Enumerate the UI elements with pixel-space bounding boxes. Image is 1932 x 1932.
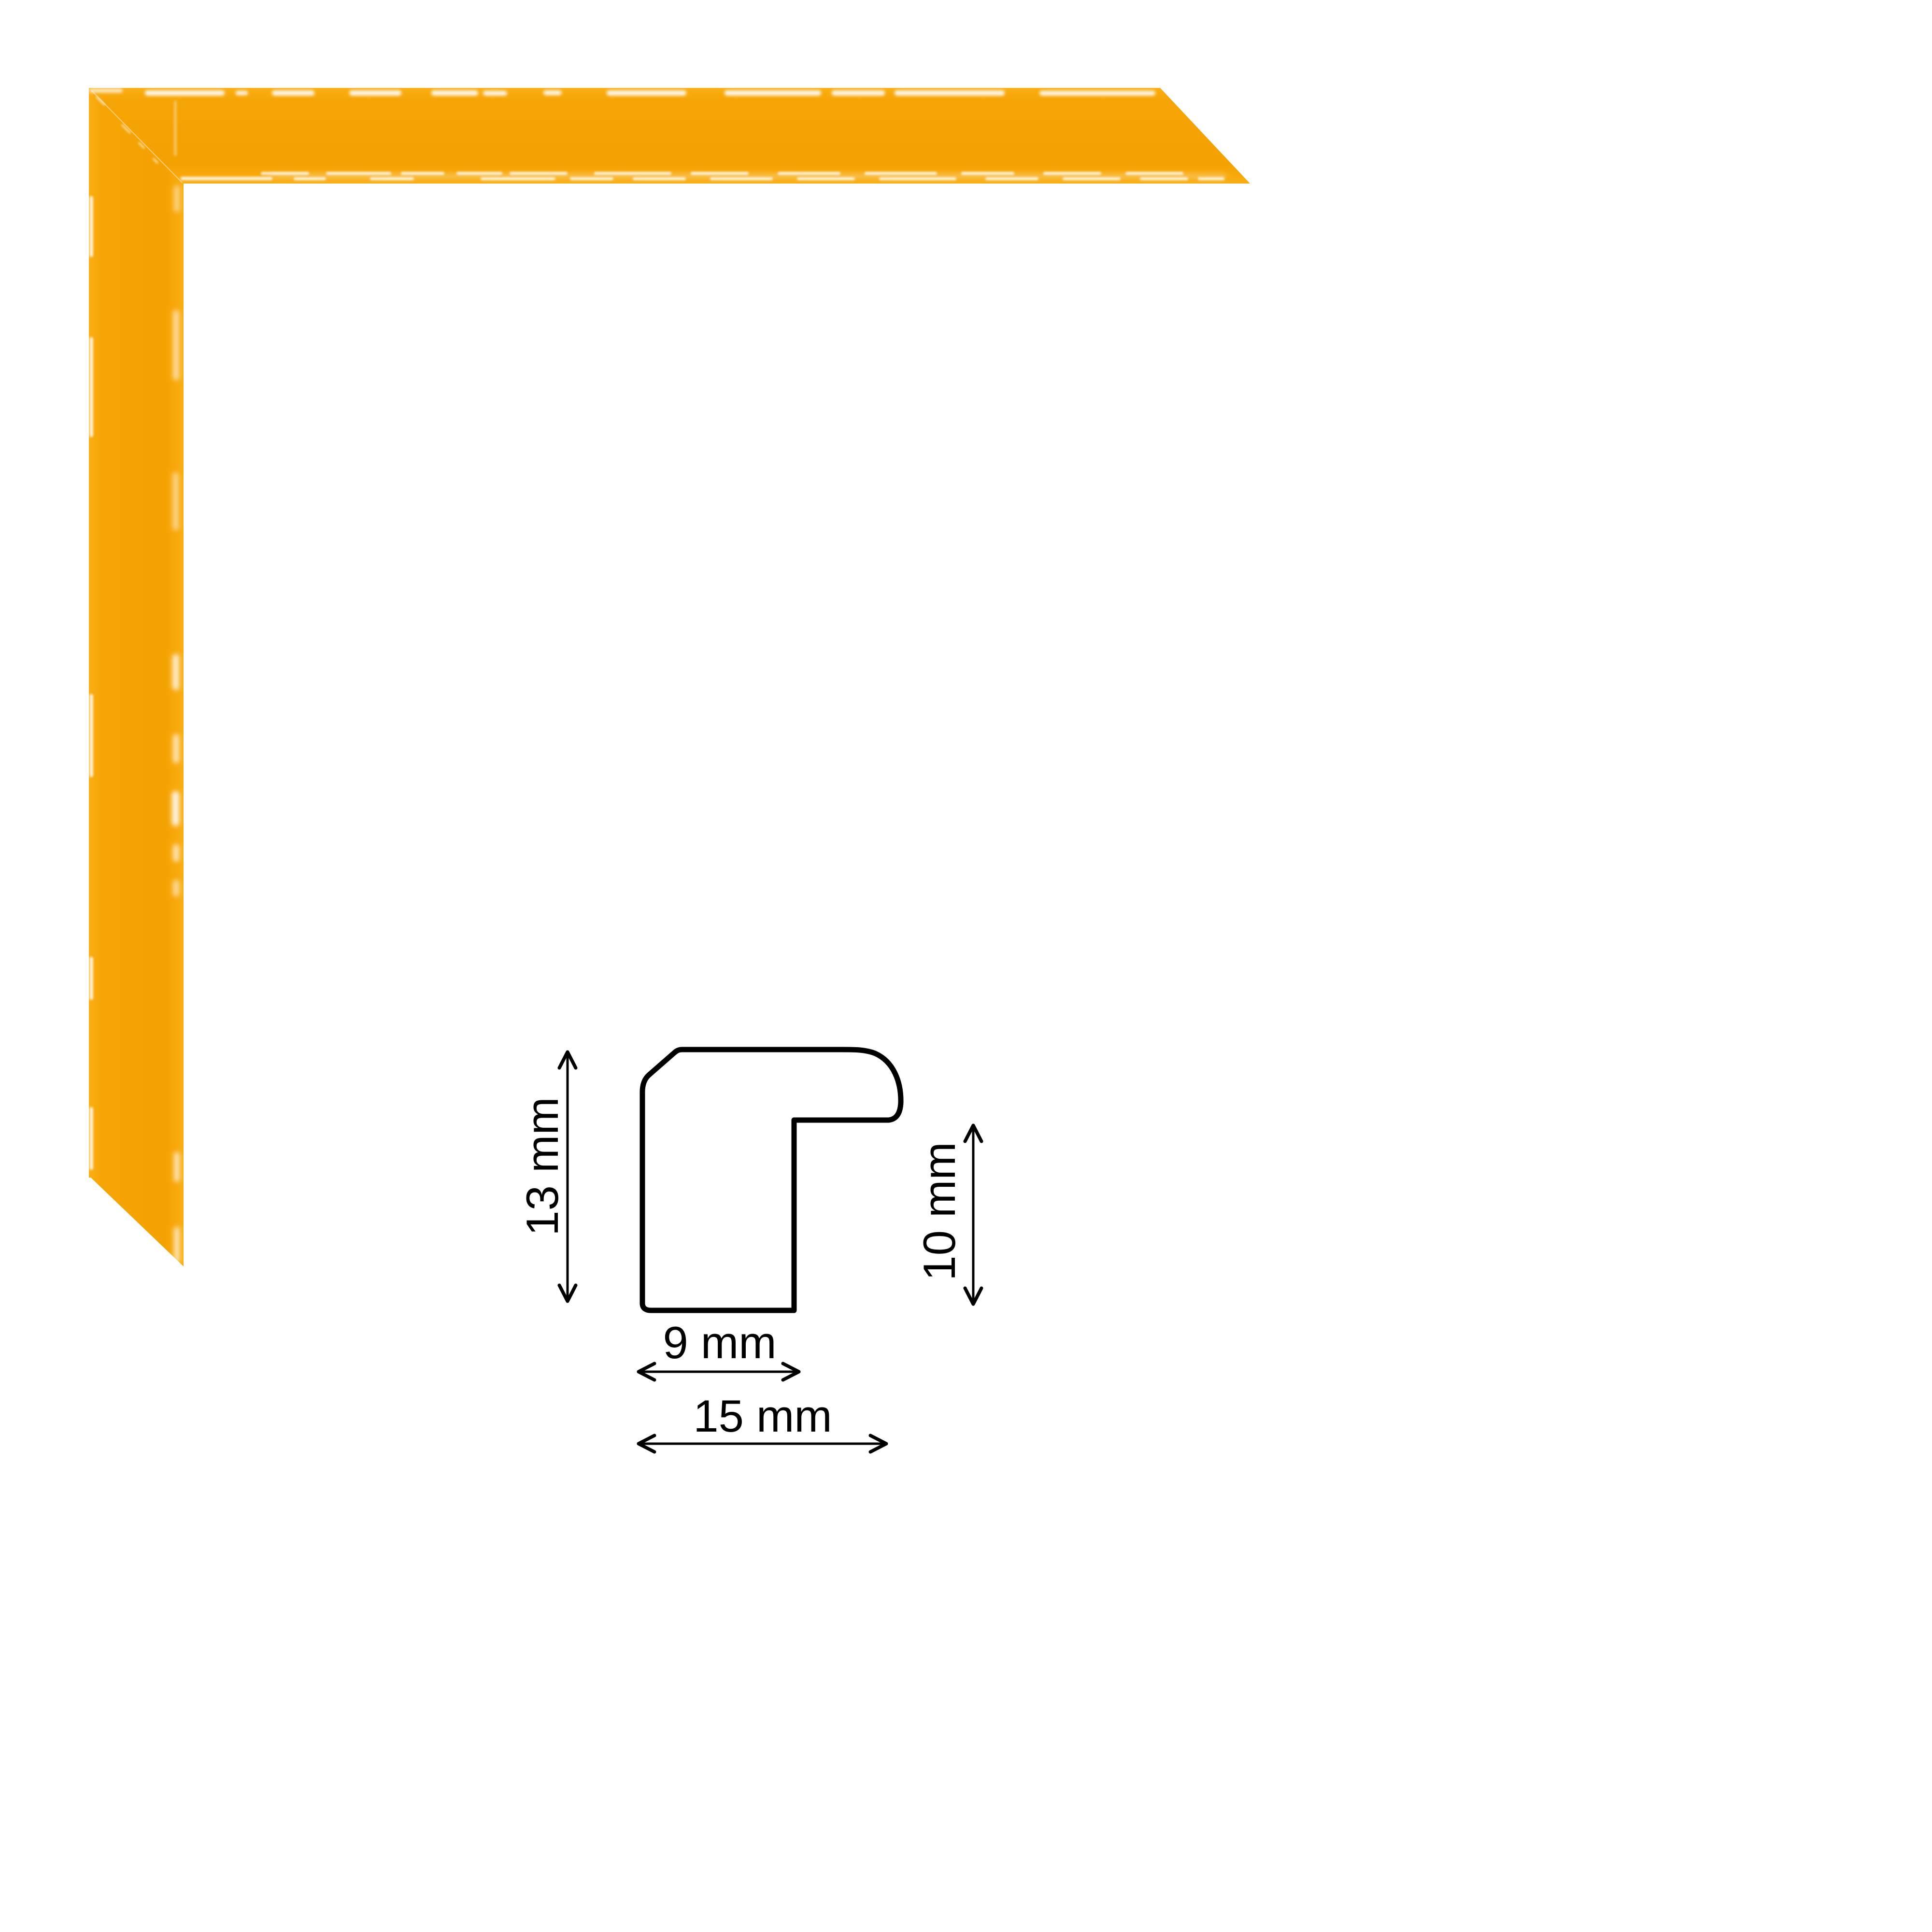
- svg-text:9 mm: 9 mm: [663, 1317, 777, 1368]
- svg-text:15 mm: 15 mm: [693, 1391, 832, 1441]
- svg-text:10 mm: 10 mm: [914, 1142, 965, 1280]
- svg-text:13 mm: 13 mm: [517, 1097, 568, 1236]
